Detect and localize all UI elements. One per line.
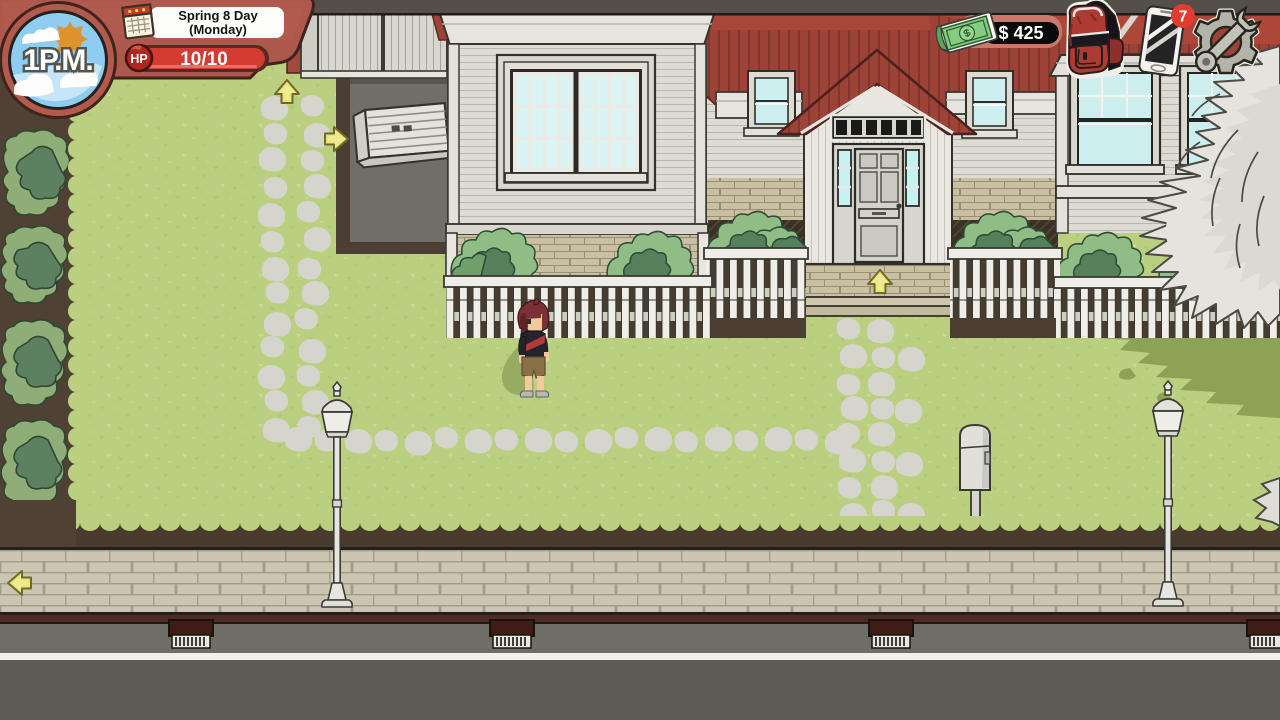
svg-text:10/10: 10/10 <box>180 49 228 70</box>
svg-text:Spring 8 Day: Spring 8 Day <box>178 8 258 23</box>
svg-text:(Monday): (Monday) <box>189 22 247 37</box>
svg-text:$ 425: $ 425 <box>998 23 1043 43</box>
svg-text:HP: HP <box>130 52 147 66</box>
svg-text:1P.M.: 1P.M. <box>23 44 93 77</box>
svg-text:7: 7 <box>1179 9 1188 26</box>
